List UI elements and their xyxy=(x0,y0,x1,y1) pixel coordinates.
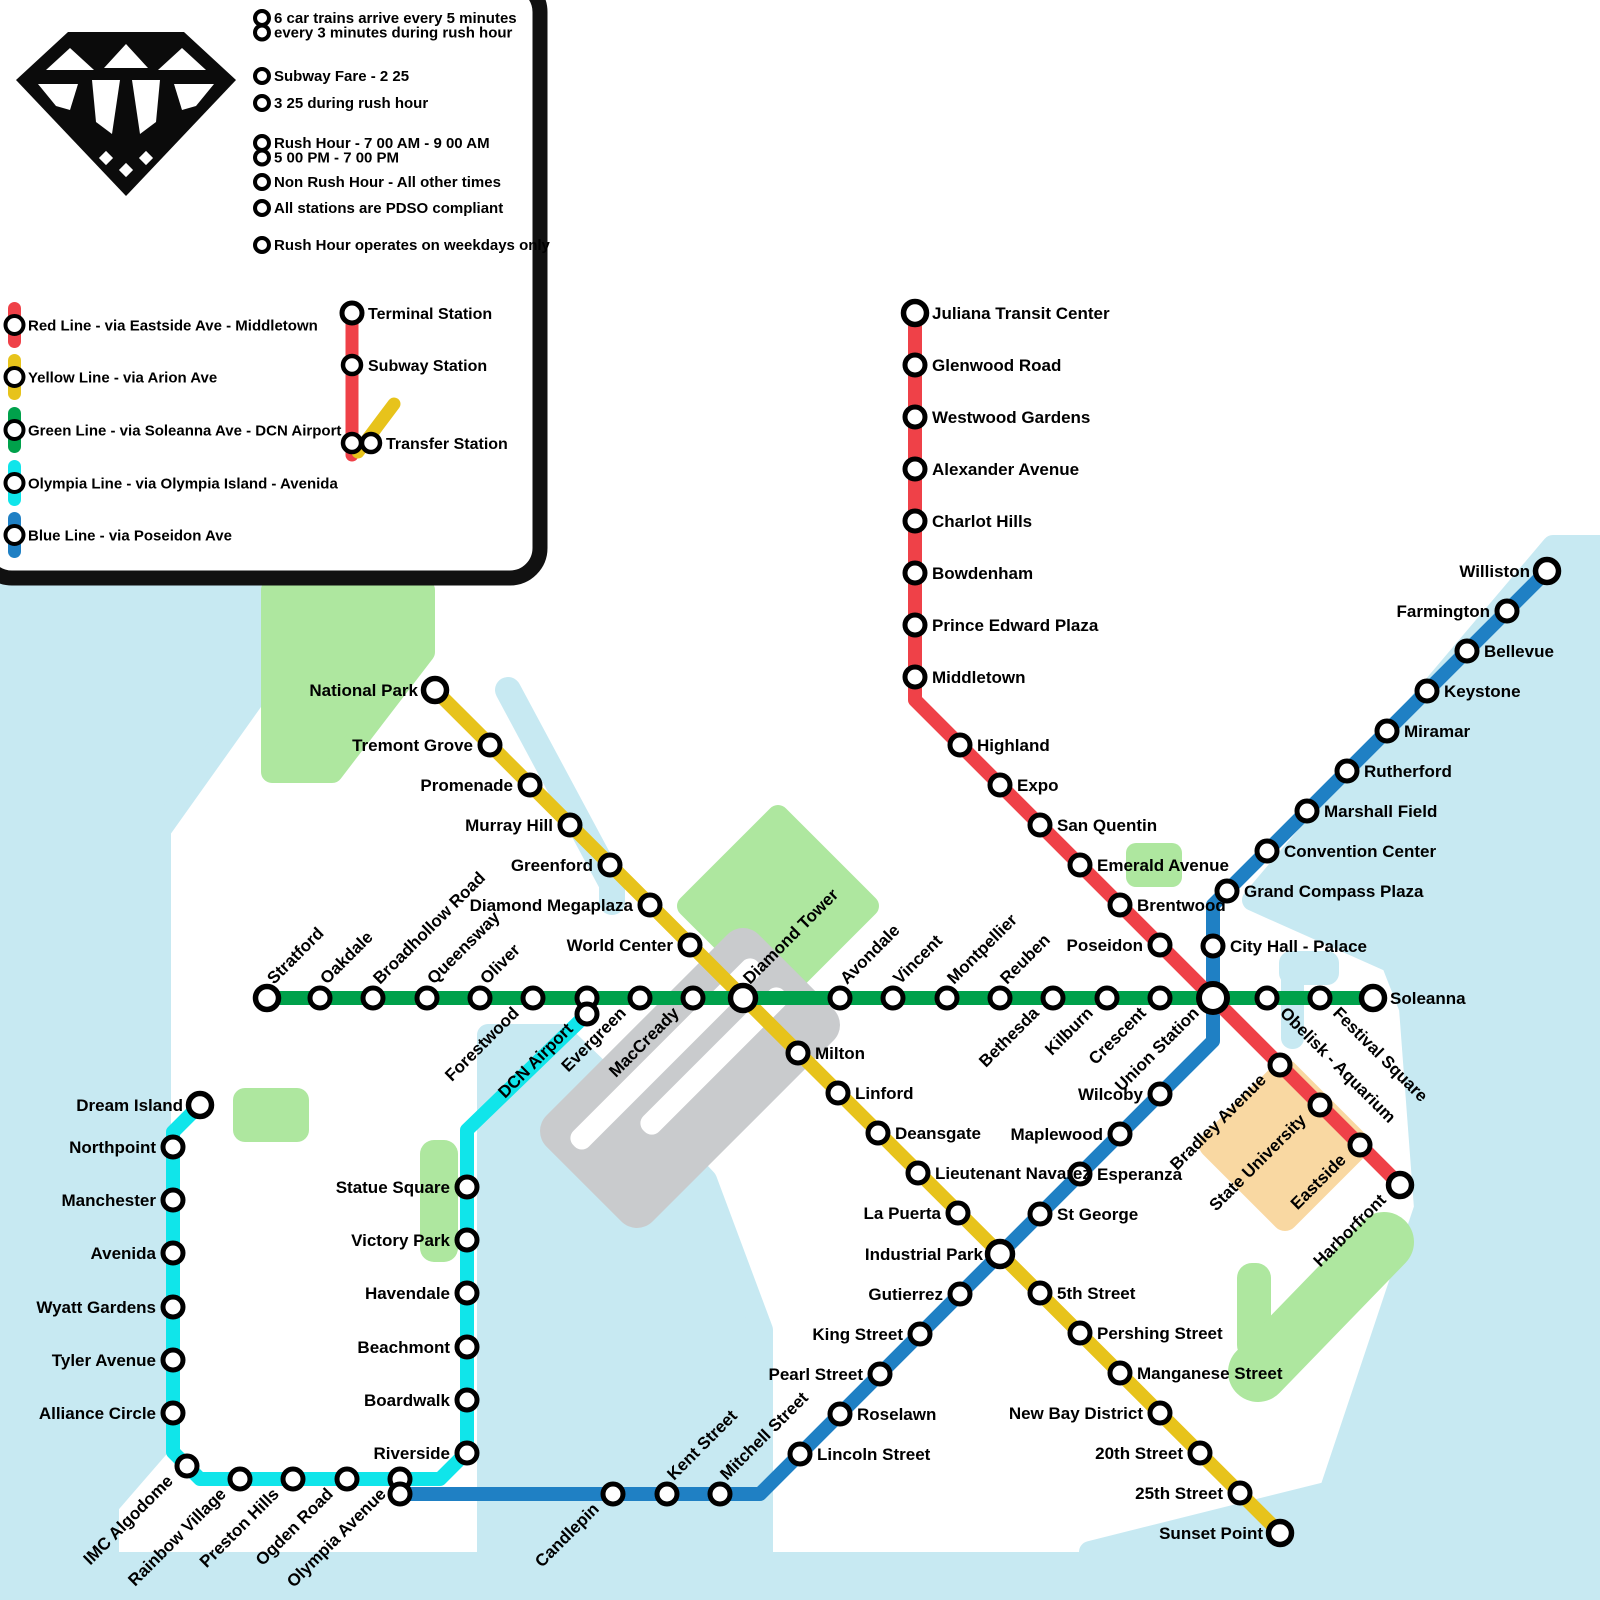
station-murray-hill[interactable] xyxy=(560,815,580,835)
legend-panel: 6 car trains arrive every 5 minutesevery… xyxy=(0,0,551,578)
station-evergreen[interactable] xyxy=(630,988,650,1008)
station-avenida[interactable] xyxy=(163,1243,183,1263)
legend-line-label-red: Red Line - via Eastside Ave - Middletown xyxy=(28,318,318,335)
station-oakdale[interactable] xyxy=(310,988,330,1008)
station-state-university[interactable] xyxy=(1310,1095,1330,1115)
station-eastside[interactable] xyxy=(1350,1135,1370,1155)
legend-line-label-green: Green Line - via Soleanna Ave - DCN Airp… xyxy=(28,423,341,440)
station-wilcoby[interactable] xyxy=(1150,1084,1170,1104)
station-label-milton: Milton xyxy=(815,1044,865,1063)
station-dcn-airport-2[interactable] xyxy=(577,1004,597,1024)
station-label-5th-street: 5th Street xyxy=(1057,1284,1136,1303)
station-label-miramar: Miramar xyxy=(1404,722,1471,741)
park-area-1 xyxy=(233,1088,309,1142)
station-williston[interactable] xyxy=(1536,560,1559,583)
station-label-greenford: Greenford xyxy=(511,856,593,875)
station-label-marshall-field: Marshall Field xyxy=(1324,802,1437,821)
station-label-manganese-street: Manganese Street xyxy=(1137,1364,1283,1383)
station-pearl-street[interactable] xyxy=(870,1364,890,1384)
station-bradley-avenue[interactable] xyxy=(1270,1055,1290,1075)
station-rainbow-village[interactable] xyxy=(230,1469,250,1489)
station-label-esperanza: Esperanza xyxy=(1097,1165,1183,1184)
station-maccready[interactable] xyxy=(683,988,703,1008)
station-prince-edward-plaza[interactable] xyxy=(905,615,925,635)
station-poseidon[interactable] xyxy=(1150,935,1170,955)
station-keystone[interactable] xyxy=(1417,681,1437,701)
station-label-la-puerta: La Puerta xyxy=(864,1204,942,1223)
station-beachmont[interactable] xyxy=(457,1337,477,1357)
station-boardwalk[interactable] xyxy=(457,1390,477,1410)
station-candlepin[interactable] xyxy=(603,1484,623,1504)
terminal-station-icon xyxy=(342,303,362,323)
station-charlot-hills[interactable] xyxy=(905,511,925,531)
station-new-bay-district[interactable] xyxy=(1150,1403,1170,1423)
station-label-promenade: Promenade xyxy=(420,776,513,795)
station-industrial-park[interactable] xyxy=(988,1242,1013,1267)
station-label-stratford: Stratford xyxy=(263,924,327,988)
legend-line-station-icon xyxy=(6,316,24,334)
station-label-25th-street: 25th Street xyxy=(1135,1484,1223,1503)
legend-bullet-icon xyxy=(255,11,269,25)
station-label-linford: Linford xyxy=(855,1084,914,1103)
station-label-maplewood: Maplewood xyxy=(1010,1125,1103,1144)
station-label-glenwood-road: Glenwood Road xyxy=(932,356,1061,375)
station-tremont-grove[interactable] xyxy=(480,735,500,755)
legend-info-text-6-0: Rush Hour operates on weekdays only xyxy=(274,237,551,254)
station-northpoint[interactable] xyxy=(163,1137,183,1157)
station-world-center[interactable] xyxy=(680,935,700,955)
station-label-national-park: National Park xyxy=(309,681,418,700)
station-label-poseidon: Poseidon xyxy=(1066,936,1143,955)
legend-bullet-icon xyxy=(255,201,269,215)
station-gutierrez[interactable] xyxy=(950,1284,970,1304)
station-la-puerta[interactable] xyxy=(948,1203,968,1223)
station-label-boardwalk: Boardwalk xyxy=(364,1391,451,1410)
station-promenade[interactable] xyxy=(520,775,540,795)
station-label-convention-center: Convention Center xyxy=(1284,842,1436,861)
legend-line-label-yellow: Yellow Line - via Arion Ave xyxy=(28,370,217,387)
station-alexander-avenue[interactable] xyxy=(905,459,925,479)
station-ogden-road[interactable] xyxy=(337,1469,357,1489)
station-soleanna[interactable] xyxy=(1362,987,1385,1010)
station-kilburn[interactable] xyxy=(1097,988,1117,1008)
station-city-hall-palace[interactable] xyxy=(1203,936,1223,956)
station-label-beachmont: Beachmont xyxy=(357,1338,450,1357)
station-maplewood[interactable] xyxy=(1110,1124,1130,1144)
station-manchester[interactable] xyxy=(163,1190,183,1210)
station-deansgate[interactable] xyxy=(868,1123,888,1143)
station-5th-street[interactable] xyxy=(1030,1283,1050,1303)
station-festival-square[interactable] xyxy=(1310,988,1330,1008)
station-label-middletown: Middletown xyxy=(932,668,1025,687)
station-san-quentin[interactable] xyxy=(1030,815,1050,835)
station-manganese-street[interactable] xyxy=(1110,1363,1130,1383)
station-label-avenida: Avenida xyxy=(90,1244,156,1263)
station-linford[interactable] xyxy=(828,1083,848,1103)
station-label-highland: Highland xyxy=(977,736,1050,755)
station-label-farmington: Farmington xyxy=(1397,602,1491,621)
station-forestwood[interactable] xyxy=(523,988,543,1008)
station-label-pearl-street: Pearl Street xyxy=(769,1365,864,1384)
water-area-4 xyxy=(0,1552,1600,1600)
station-havendale[interactable] xyxy=(457,1283,477,1303)
station-highland[interactable] xyxy=(950,735,970,755)
station-victory-park[interactable] xyxy=(457,1230,477,1250)
station-montpellier[interactable] xyxy=(937,988,957,1008)
station-stratford[interactable] xyxy=(256,987,279,1010)
legend-line-station-icon xyxy=(6,421,24,439)
station-imc-algodome[interactable] xyxy=(177,1456,197,1476)
station-wyatt-gardens[interactable] xyxy=(163,1297,183,1317)
station-label-soleanna: Soleanna xyxy=(1390,989,1466,1008)
station-alliance-circle[interactable] xyxy=(163,1403,183,1423)
station-roselawn[interactable] xyxy=(830,1404,850,1424)
station-tyler-avenue[interactable] xyxy=(163,1350,183,1370)
station-label-bellevue: Bellevue xyxy=(1484,642,1554,661)
station-greenford[interactable] xyxy=(600,855,620,875)
legend-info-text-1-0: Subway Fare - 2 25 xyxy=(274,68,409,85)
legend-line-station-icon xyxy=(6,368,24,386)
transfer-station-icon xyxy=(343,434,361,452)
station-reuben[interactable] xyxy=(990,988,1010,1008)
legend-bullet-icon xyxy=(255,96,269,110)
station-national-park[interactable] xyxy=(424,679,447,702)
subway-map-canvas: WillistonFarmingtonBellevueKeystoneMiram… xyxy=(0,0,1600,1600)
station-label-tyler-avenue: Tyler Avenue xyxy=(52,1351,156,1370)
station-label-world-center: World Center xyxy=(567,936,674,955)
legend-bullet-icon xyxy=(255,238,269,252)
station-vincent[interactable] xyxy=(883,988,903,1008)
station-label-sunset-point: Sunset Point xyxy=(1159,1524,1263,1543)
station-label-lincoln-street: Lincoln Street xyxy=(817,1445,931,1464)
station-label-san-quentin: San Quentin xyxy=(1057,816,1157,835)
station-preston-hills[interactable] xyxy=(283,1469,303,1489)
station-label-victory-park: Victory Park xyxy=(351,1231,450,1250)
station-obelisk-aquarium[interactable] xyxy=(1257,988,1277,1008)
station-label-rutherford: Rutherford xyxy=(1364,762,1452,781)
station-label-bethesda: Bethesda xyxy=(975,1003,1043,1071)
station-oliver[interactable] xyxy=(470,988,490,1008)
station-lincoln-street[interactable] xyxy=(790,1444,810,1464)
station-label-oliver: Oliver xyxy=(476,940,524,988)
station-union-station[interactable] xyxy=(1199,984,1227,1012)
station-lieutenant-navarez[interactable] xyxy=(908,1163,928,1183)
station-miramar[interactable] xyxy=(1377,721,1397,741)
station-label-st-george: St George xyxy=(1057,1205,1138,1224)
station-sunset-point[interactable] xyxy=(1269,1522,1292,1545)
station-label-wilcoby: Wilcoby xyxy=(1078,1085,1144,1104)
station-label-gutierrez: Gutierrez xyxy=(868,1285,943,1304)
station-diamond-megaplaza[interactable] xyxy=(640,895,660,915)
station-label-20th-street: 20th Street xyxy=(1095,1444,1183,1463)
station-westwood-gardens[interactable] xyxy=(905,407,925,427)
legend-line-label-olympia: Olympia Line - via Olympia Island - Aven… xyxy=(28,476,338,493)
station-label-new-bay-district: New Bay District xyxy=(1009,1404,1143,1423)
transfer-station-icon-2 xyxy=(362,434,380,452)
station-label-roselawn: Roselawn xyxy=(857,1405,936,1424)
legend-line-station-icon xyxy=(6,474,24,492)
station-dream-island[interactable] xyxy=(189,1094,212,1117)
station-bethesda[interactable] xyxy=(1043,988,1063,1008)
legend-bullet-icon xyxy=(255,151,269,165)
station-label-westwood-gardens: Westwood Gardens xyxy=(932,408,1090,427)
station-convention-center[interactable] xyxy=(1257,841,1277,861)
station-label-expo: Expo xyxy=(1017,776,1059,795)
legend-type-label-terminal-station: Terminal Station xyxy=(368,306,492,323)
station-label-emerald-avenue: Emerald Avenue xyxy=(1097,856,1229,875)
station-statue-square[interactable] xyxy=(457,1177,477,1197)
station-farmington[interactable] xyxy=(1497,601,1517,621)
station-juliana-transit-center[interactable] xyxy=(904,302,927,325)
legend-bullet-icon xyxy=(255,69,269,83)
station-diamond-tower[interactable] xyxy=(731,986,756,1011)
station-label-havendale: Havendale xyxy=(365,1284,450,1303)
station-glenwood-road[interactable] xyxy=(905,355,925,375)
legend-type-label-transfer-station: Transfer Station xyxy=(386,436,508,453)
station-label-northpoint: Northpoint xyxy=(69,1138,156,1157)
station-milton[interactable] xyxy=(788,1043,808,1063)
station-label-prince-edward-plaza: Prince Edward Plaza xyxy=(932,616,1099,635)
station-label-alexander-avenue: Alexander Avenue xyxy=(932,460,1079,479)
legend-bullet-icon xyxy=(255,136,269,150)
legend-type-label-subway-station: Subway Station xyxy=(368,358,487,375)
station-mitchell-street[interactable] xyxy=(710,1484,730,1504)
station-king-street[interactable] xyxy=(910,1324,930,1344)
legend-bullet-icon xyxy=(255,26,269,40)
station-emerald-avenue[interactable] xyxy=(1070,855,1090,875)
station-bellevue[interactable] xyxy=(1457,641,1477,661)
station-label-williston: Williston xyxy=(1459,562,1530,581)
station-label-brentwood: Brentwood xyxy=(1137,896,1226,915)
legend-info-text-4-0: Non Rush Hour - All other times xyxy=(274,174,501,191)
station-label-bowdenham: Bowdenham xyxy=(932,564,1033,583)
station-label-murray-hill: Murray Hill xyxy=(465,816,553,835)
station-label-keystone: Keystone xyxy=(1444,682,1521,701)
station-25th-street[interactable] xyxy=(1230,1483,1250,1503)
station-rutherford[interactable] xyxy=(1337,761,1357,781)
station-label-king-street: King Street xyxy=(812,1325,903,1344)
legend-info-text-3-1: 5 00 PM - 7 00 PM xyxy=(274,150,399,167)
station-riverside[interactable] xyxy=(457,1443,477,1463)
station-label-city-hall-palace: City Hall - Palace xyxy=(1230,937,1367,956)
station-label-wyatt-gardens: Wyatt Gardens xyxy=(36,1298,156,1317)
subway-station-icon xyxy=(343,356,361,374)
station-pershing-street[interactable] xyxy=(1070,1323,1090,1343)
station-label-tremont-grove: Tremont Grove xyxy=(352,736,473,755)
station-broadhollow-road[interactable] xyxy=(363,988,383,1008)
station-label-dream-island: Dream Island xyxy=(76,1096,183,1115)
legend-bullet-icon xyxy=(255,175,269,189)
station-olympia-avenue-2[interactable] xyxy=(390,1484,410,1504)
station-kent-street[interactable] xyxy=(657,1484,677,1504)
station-expo[interactable] xyxy=(990,775,1010,795)
station-20th-street[interactable] xyxy=(1190,1443,1210,1463)
station-marshall-field[interactable] xyxy=(1297,801,1317,821)
legend-line-station-icon xyxy=(6,526,24,544)
station-st-george[interactable] xyxy=(1030,1204,1050,1224)
station-label-riverside: Riverside xyxy=(373,1444,450,1463)
station-label-charlot-hills: Charlot Hills xyxy=(932,512,1032,531)
station-label-deansgate: Deansgate xyxy=(895,1124,981,1143)
station-label-industrial-park: Industrial Park xyxy=(865,1245,984,1264)
station-queensway[interactable] xyxy=(417,988,437,1008)
station-label-pershing-street: Pershing Street xyxy=(1097,1324,1223,1343)
station-bowdenham[interactable] xyxy=(905,563,925,583)
station-harborfront[interactable] xyxy=(1389,1174,1412,1197)
station-brentwood[interactable] xyxy=(1110,895,1130,915)
legend-info-text-2-0: 3 25 during rush hour xyxy=(274,95,428,112)
station-middletown[interactable] xyxy=(905,667,925,687)
station-label-alliance-circle: Alliance Circle xyxy=(39,1404,156,1423)
station-avondale[interactable] xyxy=(830,988,850,1008)
legend-line-label-blue: Blue Line - via Poseidon Ave xyxy=(28,528,232,545)
station-label-grand-compass-plaza: Grand Compass Plaza xyxy=(1244,882,1424,901)
legend-info-text-0-1: every 3 minutes during rush hour xyxy=(274,25,513,42)
subway-map: WillistonFarmingtonBellevueKeystoneMiram… xyxy=(0,0,1600,1600)
station-label-lieutenant-navarez: Lieutenant Navarez xyxy=(935,1164,1091,1183)
station-label-manchester: Manchester xyxy=(62,1191,157,1210)
station-crescent[interactable] xyxy=(1150,988,1170,1008)
station-label-statue-square: Statue Square xyxy=(336,1178,450,1197)
legend-info-text-5-0: All stations are PDSO compliant xyxy=(274,200,503,217)
station-label-juliana-transit-center: Juliana Transit Center xyxy=(932,304,1110,323)
